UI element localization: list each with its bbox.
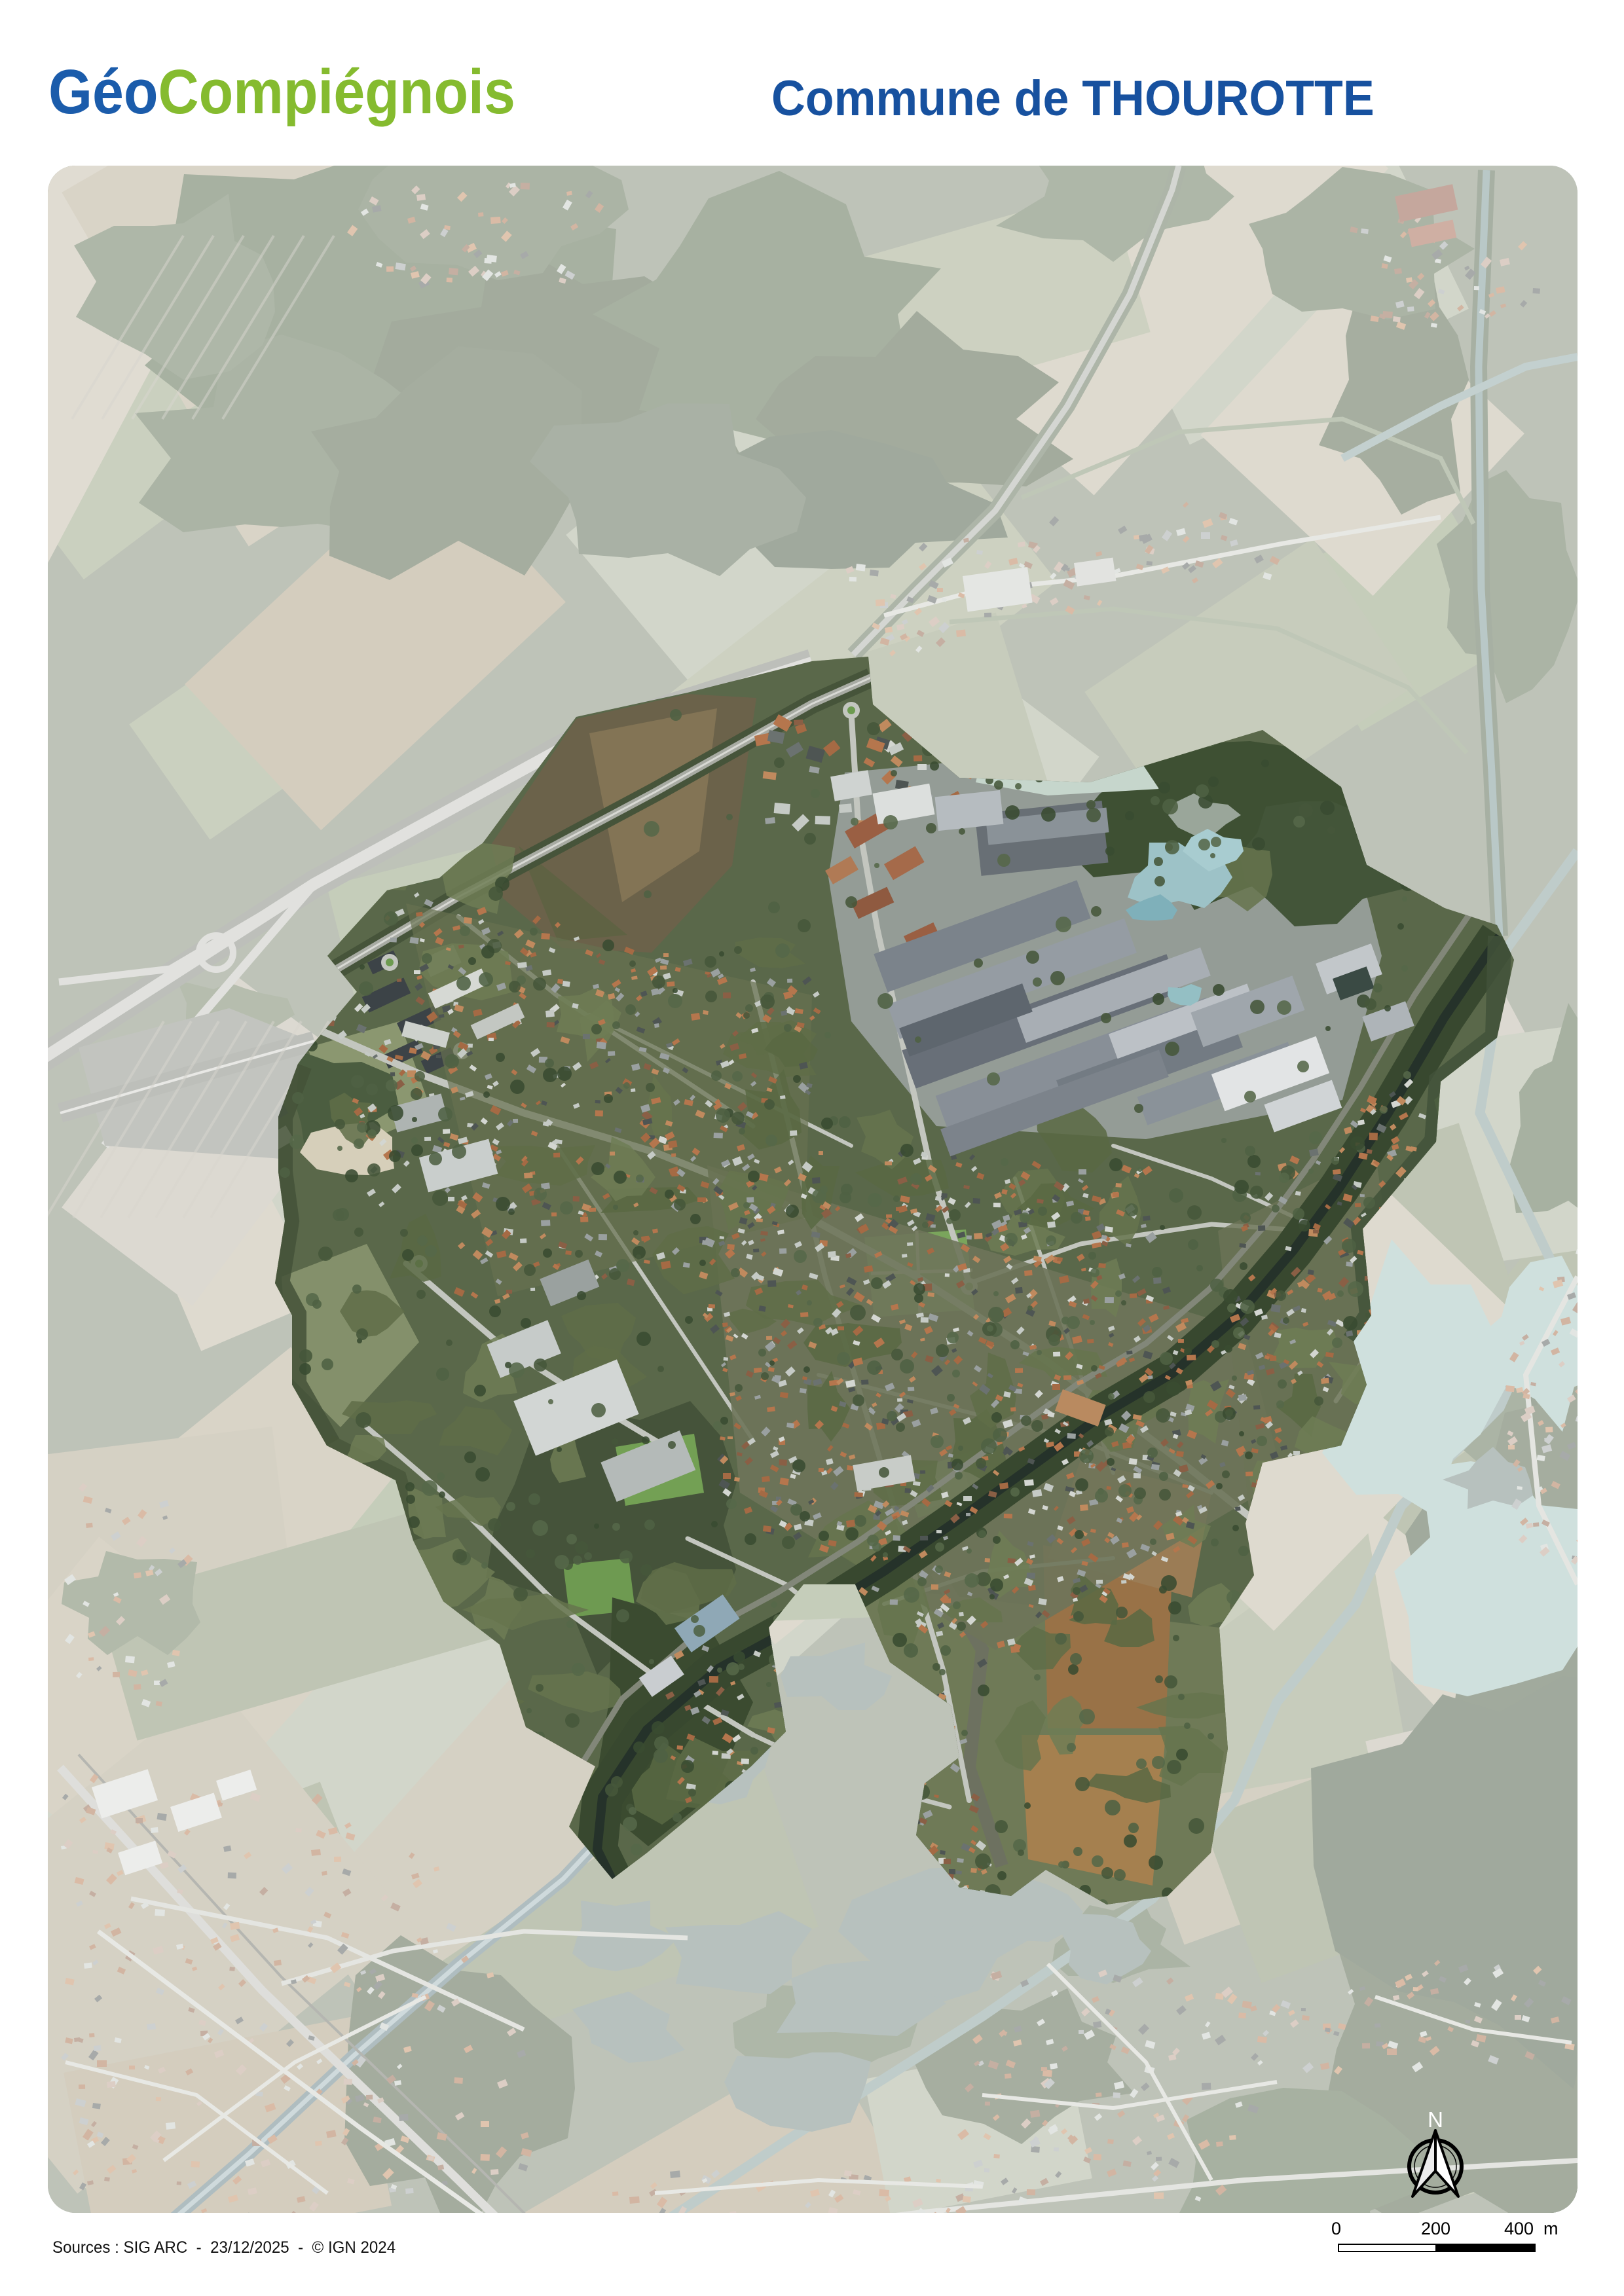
svg-text:N: N (1428, 2107, 1443, 2132)
